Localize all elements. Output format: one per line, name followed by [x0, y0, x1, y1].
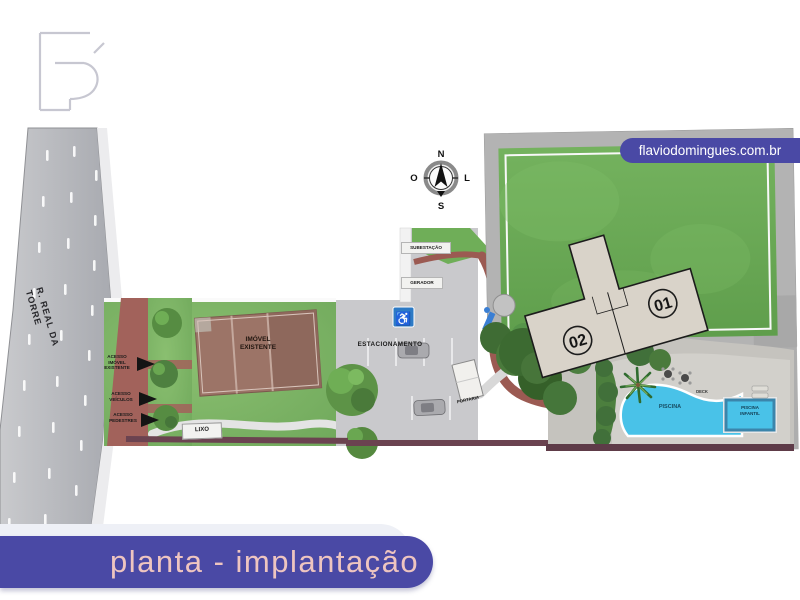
- kids-pool-label: PISCINA INFANTIL: [727, 405, 773, 416]
- compass-n: N: [438, 149, 445, 160]
- fd-logo: [36, 10, 141, 122]
- wheelchair-icon: ♿: [395, 311, 411, 326]
- website-badge[interactable]: flaviodomingues.com.br: [620, 138, 800, 163]
- existing-building-label: IMÓVEL EXISTENTE: [224, 336, 292, 352]
- parking-label: ESTACIONAMENTO: [350, 341, 430, 349]
- access-existing-label: ACESSO IMÓVEL EXISTENTE: [94, 354, 140, 371]
- access-pedestrians-label: ACESSO PEDESTRES: [100, 412, 146, 423]
- compass-e: L: [464, 173, 470, 184]
- access-vehicles-label: ACESSO VEÍCULOS: [98, 391, 144, 402]
- substation-label: SUBESTAÇÃO: [401, 242, 451, 254]
- page-title: planta - implantação: [110, 544, 419, 580]
- deck-label: DECK: [691, 389, 713, 394]
- driving-car: [414, 399, 446, 416]
- pool-label: PISCINA: [648, 404, 692, 411]
- title-badge: planta - implantação: [0, 536, 433, 588]
- compass-rose: N S O L: [410, 149, 470, 212]
- fd-logo-graphic: [36, 10, 141, 122]
- website-url[interactable]: flaviodomingues.com.br: [639, 143, 782, 158]
- compass-w: O: [410, 173, 417, 184]
- site-plan-canvas: ♿: [0, 0, 800, 600]
- compass-s: S: [438, 201, 444, 212]
- accessible-parking-sign: ♿: [393, 307, 414, 327]
- generator-label: GERADOR: [401, 277, 443, 289]
- wall-corner-post: [493, 294, 515, 316]
- existing-building-roof: [194, 310, 321, 396]
- trash-label: LIXO: [182, 422, 223, 439]
